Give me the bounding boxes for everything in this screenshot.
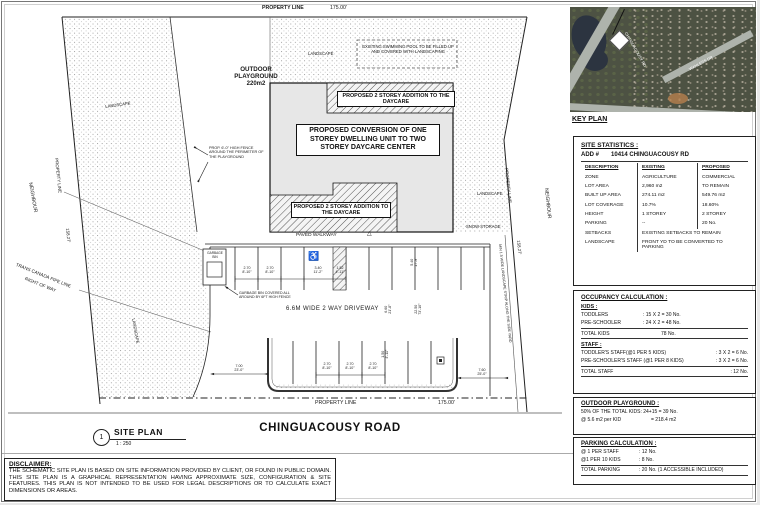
pool-note: EXISTING SWIMMING POOL TO BE FILLED UP A… (361, 44, 455, 54)
stat-proposed: 2 STOREY (697, 210, 748, 219)
landscape-label-3: LANDSCAPE (477, 191, 502, 196)
sheet-title: SITE PLAN (114, 427, 163, 437)
property-line-bottom-label: PROPERTY LINE (315, 400, 356, 406)
dim-stall-depth: 5.4017'-9" (410, 253, 418, 271)
playground-calc-panel: OUTDOOR PLAYGROUND : 50% OF THE TOTAL KI… (573, 397, 756, 435)
stat-proposed: 20 No. (697, 219, 748, 228)
kids-total-row: TOTAL KIDS 78 No. (581, 328, 748, 339)
dim-lower-3: 2.708'-10" (364, 362, 382, 370)
property-line-top-label: PROPERTY LINE (262, 5, 304, 11)
stat-existing: 1 STOREY (637, 210, 697, 219)
addition-note-bottom: PROPOSED 2 STOREY ADDITION TO THE DAYCAR… (291, 202, 391, 218)
sheet-scale: 1 : 250 (116, 441, 131, 447)
playground-calc-line1: 50% OF THE TOTAL KIDS: 24+15 = 39 No. (581, 409, 748, 415)
driveway-label: 6.6M WIDE 2 WAY DRIVEWAY (286, 306, 379, 312)
parking-calc-row: @1 PER 10 KIDS : 8 No. (581, 457, 748, 463)
playground-calc-line2-label: @ 5.6 m2 per KID (581, 417, 651, 423)
addition-note-top: PROPOSED 2 STOREY ADDITION TO THE DAYCAR… (337, 91, 455, 107)
stat-desc: ZONE (581, 172, 637, 181)
building-note: PROPOSED CONVERSION OF ONE STOREY DWELLI… (296, 124, 440, 156)
disclaimer-panel: DISCLAIMER: THE SCHEMATIC SITE PLAN IS B… (4, 458, 336, 501)
staff-total-label: TOTAL STAFF (581, 369, 613, 375)
road-title: CHINGUACOUSY ROAD (225, 422, 435, 434)
stat-existing: -- (637, 219, 697, 228)
landscape-label-2: LANDSCAPE (308, 51, 333, 56)
kids-row: TODDLERS : 15 X 2 = 30 No. (581, 312, 748, 318)
dim-right-setback: 7.6025'-0" (473, 368, 491, 376)
parking-calc-value: : 12 No. (639, 449, 657, 455)
disclaimer-body: THE SCHEMATIC SITE PLAN IS BASED ON SITE… (9, 468, 331, 495)
dim-stall-2: 2.708'-10" (261, 266, 279, 274)
wheelchair-icon: ♿ (308, 251, 319, 262)
landscape-strip-lower-row (273, 384, 453, 389)
kids-total-value: 78 No. (661, 331, 676, 337)
stat-proposed: TO REMAIN (697, 182, 748, 191)
occupancy-title: OCCUPANCY CALCULATION : (581, 295, 748, 301)
playground-label: OUTDOOR PLAYGROUND (224, 66, 288, 80)
parking-total-label: TOTAL PARKING (581, 467, 639, 473)
kids-row-label: PRE-SCHOOLER (581, 320, 643, 326)
staff-row: TODDLER'S STAFF(@1 PER 5 KIDS) : 3 X 2 =… (581, 350, 748, 356)
staff-row-label: TODDLER'S STAFF(@1 PER 5 KIDS) (581, 350, 666, 356)
stat-span-value: FRONT YD TO BE CONVERTED TO PARKING (637, 238, 748, 252)
site-statistics-title: SITE STATISTICS : (581, 142, 748, 149)
catch-basin-inner (439, 359, 442, 362)
staff-row-value: : 3 X 2 = 6 No. (716, 358, 748, 364)
fence-note-leader-1 (196, 148, 208, 155)
garbage-bin-label: GARBAGE BIN (205, 252, 225, 259)
dim-aisle: 1.524'-11" (331, 266, 349, 274)
playground-calc-line2-value: = 218.4 m2 (651, 417, 676, 423)
staff-subtitle: STAFF : (581, 342, 748, 348)
sheet-number-bubble: 1 (93, 429, 110, 446)
stat-existing: AGRICULTURE (637, 172, 697, 181)
stat-desc: BUILT UP AREA (581, 191, 637, 200)
stat-proposed: 549.76 m2 (697, 191, 748, 200)
garbage-leader-line (226, 287, 238, 295)
stat-desc: HEIGHT (581, 210, 637, 219)
dim-lot-depth: 22.5073'-10" (414, 300, 422, 318)
site-statistics-panel: SITE STATISTICS : ADD # 10414 CHINGUACOU… (573, 136, 756, 286)
parking-calc-label: @1 PER 10 KIDS (581, 457, 639, 463)
paved-walkway-label: PAVED WALKWAY (296, 233, 337, 238)
property-line-top-dim: 175.00' (330, 5, 347, 11)
dim-lower-2: 2.708'-10" (341, 362, 359, 370)
staff-row-label: PRE-SCHOOLER'S STAFF (@1 PER 8 KIDS) (581, 358, 684, 364)
kids-row-label: TODDLERS (581, 312, 643, 318)
stat-desc: LANDSCAPE (581, 238, 637, 252)
stat-proposed: COMMERCIAL (697, 172, 748, 181)
parking-total-value: : 20 No. (1 ACCESSIBLE INCLUDED) (639, 467, 723, 473)
stall-dimension-line-bottom (316, 372, 385, 378)
disclaimer-title: DISCLAIMER: (9, 461, 331, 468)
stat-existing: 2,960 m2 (637, 182, 697, 191)
playground-calc-line2: @ 5.6 m2 per KID = 218.4 m2 (581, 417, 748, 423)
dim-island: 1.504'-11" (381, 345, 389, 363)
staff-row-value: : 3 X 2 = 6 No. (716, 350, 748, 356)
parking-calc-row: @ 1 PER STAFF : 12 No. (581, 449, 748, 455)
stat-existing: 274.11 m2 (637, 191, 697, 200)
key-plan-title: KEY PLAN (572, 116, 607, 123)
lower-parking-curb-inner (272, 338, 453, 387)
parking-calc-title: PARKING CALCULATION : (581, 441, 748, 447)
parking-calc-label: @ 1 PER STAFF (581, 449, 639, 455)
key-plan-map: CHINGUACOUSY RD WANLESS DR (570, 7, 756, 112)
parking-calc-value: : 8 No. (639, 457, 654, 463)
stat-proposed: 18.60% (697, 201, 748, 210)
kids-subtitle: KIDS : (581, 304, 748, 310)
fence-note: PROP. 6'-0" HIGH FENCE AROUND THE PERIME… (209, 146, 267, 159)
address-value: 10414 CHINGUACOUSY RD (611, 152, 689, 158)
fence-note-leader-2 (199, 162, 208, 180)
occupancy-panel: OCCUPANCY CALCULATION : KIDS : TODDLERS … (573, 290, 756, 394)
dim-driveway-width: 6.6021'-8" (384, 300, 392, 318)
garbage-note: GARBAGE BIN COVERED ALL AROUND BY 6FT HI… (239, 291, 293, 299)
snow-storage-label: SNOW STORAGE (466, 224, 501, 229)
sheet-title-underline (110, 439, 186, 440)
lower-parking-curb-outer (268, 338, 457, 391)
staff-total-row: TOTAL STAFF : 12 No. (581, 366, 748, 377)
col-header-description: DESCRIPTION (581, 163, 637, 172)
parking-total-row: TOTAL PARKING : 20 No. (1 ACCESSIBLE INC… (581, 465, 748, 476)
staff-row: PRE-SCHOOLER'S STAFF (@1 PER 8 KIDS) : 3… (581, 358, 748, 364)
stat-desc: LOT AREA (581, 182, 637, 191)
dim-stall-accessible: 3.4011'-2" (309, 266, 327, 274)
property-line-bottom-dim: 175.00' (438, 400, 455, 406)
address-row: ADD # 10414 CHINGUACOUSY RD (581, 152, 748, 162)
stat-desc: LOT COVERAGE (581, 201, 637, 210)
playground-calc-title: OUTDOOR PLAYGROUND : (581, 401, 748, 407)
stall-dimension-line-top (235, 276, 346, 282)
col-header-existing: EXISTING (637, 163, 697, 172)
walkway-triangle-marker: △ (367, 230, 372, 237)
kids-row-value: : 15 X 2 = 30 No. (643, 312, 681, 318)
stat-span-value: EXISTING SETBACKS TO REMAIN (637, 229, 748, 238)
kids-total-label: TOTAL KIDS (581, 331, 643, 337)
stat-desc: PARKING (581, 219, 637, 228)
site-plan-sheet: PROPERTY LINE 175.00' PROPERTY LINE 175.… (0, 0, 757, 503)
site-statistics-table: DESCRIPTION EXISTING PROPOSED ZONE AGRIC… (581, 163, 748, 252)
col-header-proposed: PROPOSED (697, 163, 748, 172)
keyplan-clearing (668, 93, 688, 104)
address-label: ADD # (581, 152, 599, 158)
dim-entrance: 7.0023'-0" (230, 364, 248, 372)
dim-stall-1: 2.708'-10" (238, 266, 256, 274)
stat-existing: 10.7% (637, 201, 697, 210)
kids-row-value: : 24 X 2 = 48 No. (643, 320, 681, 326)
staff-total-value: : 12 No. (730, 369, 748, 375)
kids-row: PRE-SCHOOLER : 24 X 2 = 48 No. (581, 320, 748, 326)
dim-lower-1: 2.708'-10" (318, 362, 336, 370)
stat-desc: SETBACKS (581, 229, 637, 238)
parking-calc-panel: PARKING CALCULATION : @ 1 PER STAFF : 12… (573, 437, 756, 485)
playground-area-label: 220m2 (224, 81, 288, 87)
